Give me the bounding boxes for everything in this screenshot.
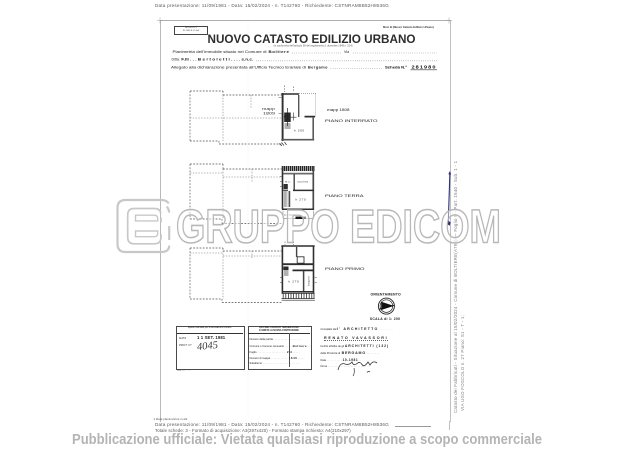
- svg-text:Pubblicazione ufficiale: Vieta: Pubblicazione ufficiale: Vietata qualsia…: [72, 432, 542, 448]
